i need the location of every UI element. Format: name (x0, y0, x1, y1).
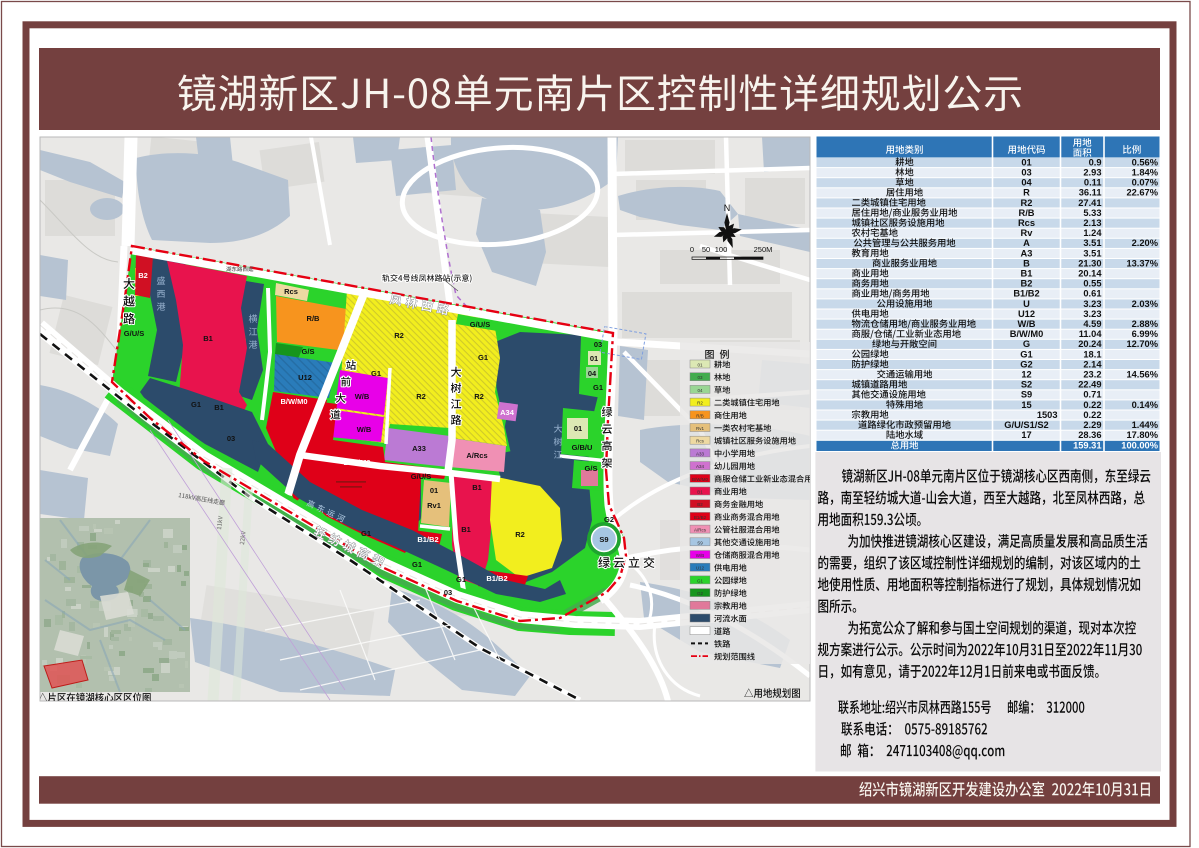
svg-text:A33: A33 (696, 451, 705, 456)
svg-text:S9: S9 (599, 535, 608, 544)
svg-text:22.49: 22.49 (1078, 380, 1101, 390)
svg-text:W/B: W/B (1017, 319, 1035, 329)
svg-text:18.1: 18.1 (1083, 349, 1101, 359)
svg-text:13.37%: 13.37% (1126, 258, 1158, 268)
svg-text:0.07%: 0.07% (1132, 178, 1159, 188)
svg-text:B1/B2: B1/B2 (1013, 289, 1039, 299)
svg-text:G1: G1 (478, 353, 488, 362)
svg-text:G2: G2 (604, 515, 614, 524)
svg-text:12: 12 (1021, 370, 1031, 380)
svg-text:W/B: W/B (696, 553, 705, 558)
svg-text:36.11: 36.11 (1079, 188, 1102, 198)
svg-text:3.23: 3.23 (1083, 299, 1101, 309)
svg-text:03: 03 (697, 375, 703, 380)
svg-text:R2: R2 (416, 392, 426, 401)
svg-text:250M: 250M (754, 245, 773, 254)
svg-text:G2: G2 (697, 591, 704, 596)
svg-text:G1: G1 (371, 369, 381, 378)
svg-text:Rv1: Rv1 (696, 426, 704, 431)
svg-text:15: 15 (1021, 400, 1031, 410)
svg-text:G/U/S: G/U/S (124, 329, 144, 338)
svg-text:2.20%: 2.20% (1132, 238, 1159, 248)
svg-text:11.04: 11.04 (1079, 329, 1103, 339)
svg-text:3.51: 3.51 (1083, 248, 1101, 258)
svg-text:A34: A34 (696, 464, 705, 469)
svg-text:A34: A34 (500, 408, 515, 417)
svg-text:B: B (1023, 258, 1030, 268)
svg-text:17.80%: 17.80% (1126, 430, 1158, 440)
svg-text:5.33: 5.33 (1083, 208, 1101, 218)
svg-text:B1: B1 (214, 403, 224, 412)
svg-text:2.88%: 2.88% (1132, 319, 1159, 329)
svg-text:14.56%: 14.56% (1126, 370, 1158, 380)
svg-text:A3: A3 (1021, 248, 1033, 258)
svg-text:12.70%: 12.70% (1126, 339, 1158, 349)
svg-text:2.29: 2.29 (1083, 420, 1101, 430)
svg-text:0.11: 0.11 (1084, 178, 1102, 188)
svg-text:2.13: 2.13 (1083, 218, 1101, 228)
svg-text:Rcs: Rcs (696, 439, 704, 444)
svg-text:01: 01 (590, 354, 598, 363)
svg-text:G/U/S: G/U/S (470, 320, 490, 329)
svg-text:B1: B1 (697, 490, 703, 495)
svg-text:22.67%: 22.67% (1126, 188, 1158, 198)
svg-text:03: 03 (1021, 168, 1031, 178)
svg-text:G/S: G/S (585, 464, 598, 473)
svg-text:159.31: 159.31 (1073, 441, 1101, 451)
svg-text:R2: R2 (697, 401, 703, 406)
svg-text:0.14%: 0.14% (1132, 400, 1159, 410)
svg-text:G1: G1 (361, 529, 371, 538)
svg-text:G1: G1 (412, 560, 422, 569)
svg-text:B/W/M0: B/W/M0 (343, 458, 370, 467)
svg-text:1.24: 1.24 (1083, 228, 1102, 238)
svg-text:2.14: 2.14 (1083, 359, 1102, 369)
svg-text:B1/B2: B1/B2 (486, 574, 507, 583)
svg-text:B/W/M0: B/W/M0 (692, 477, 708, 482)
svg-text:03: 03 (444, 588, 452, 597)
svg-text:G1: G1 (593, 383, 603, 392)
svg-text:B1: B1 (461, 525, 471, 534)
svg-text:1.84%: 1.84% (1132, 168, 1159, 178)
svg-text:G/U/S1/S2: G/U/S1/S2 (1004, 420, 1048, 430)
svg-text:0.71: 0.71 (1083, 390, 1101, 400)
svg-text:20.24: 20.24 (1078, 339, 1102, 349)
svg-text:A/Rcs: A/Rcs (694, 528, 707, 533)
svg-text:B2: B2 (138, 271, 148, 280)
svg-text:Rcs: Rcs (1018, 218, 1035, 228)
svg-text:100: 100 (715, 245, 728, 254)
svg-text:B2: B2 (1021, 279, 1033, 289)
svg-text:1.44%: 1.44% (1132, 420, 1159, 430)
svg-text:01: 01 (574, 424, 582, 433)
svg-text:2.93: 2.93 (1083, 168, 1101, 178)
svg-text:R2: R2 (1021, 198, 1033, 208)
svg-text:04: 04 (1021, 178, 1032, 188)
svg-text:03: 03 (594, 340, 602, 349)
svg-text:100.00%: 100.00% (1121, 441, 1158, 451)
svg-text:R2: R2 (515, 530, 525, 539)
svg-text:G/U/S: G/U/S (411, 472, 431, 481)
svg-text:W/B: W/B (355, 392, 370, 401)
svg-text:W/B: W/B (357, 425, 372, 434)
svg-text:04: 04 (588, 369, 597, 378)
svg-text:17: 17 (1021, 430, 1031, 440)
svg-text:B2: B2 (697, 502, 703, 507)
svg-text:0.56%: 0.56% (1132, 157, 1159, 167)
svg-text:01: 01 (430, 486, 438, 495)
svg-text:G1: G1 (456, 575, 466, 584)
svg-text:S9: S9 (1021, 390, 1032, 400)
svg-text:B1: B1 (472, 483, 482, 492)
svg-text:G/S: G/S (302, 347, 315, 356)
svg-text:B1: B1 (1021, 269, 1033, 279)
svg-text:R/B: R/B (307, 314, 321, 323)
svg-text:0.9: 0.9 (1089, 157, 1102, 167)
svg-text:03: 03 (227, 434, 235, 443)
svg-text:3.51: 3.51 (1083, 238, 1101, 248)
svg-text:21.30: 21.30 (1078, 258, 1101, 268)
svg-text:G1: G1 (191, 400, 201, 409)
svg-text:4.59: 4.59 (1083, 319, 1101, 329)
svg-text:G2: G2 (1020, 359, 1032, 369)
svg-text:2.03%: 2.03% (1132, 299, 1159, 309)
svg-text:0: 0 (690, 245, 694, 254)
svg-text:G1: G1 (1020, 349, 1032, 359)
svg-text:N: N (724, 203, 731, 213)
svg-text:S2: S2 (1021, 380, 1032, 390)
svg-text:G/B/U: G/B/U (572, 443, 593, 452)
svg-text:R: R (1023, 188, 1030, 198)
svg-text:B/W/M0: B/W/M0 (1010, 329, 1044, 339)
svg-text:U: U (1023, 299, 1030, 309)
svg-text:0.61: 0.61 (1083, 289, 1101, 299)
svg-text:04: 04 (697, 388, 703, 393)
svg-text:20.14: 20.14 (1078, 269, 1102, 279)
svg-text:G: G (1023, 339, 1030, 349)
svg-text:Rv1: Rv1 (427, 501, 441, 510)
svg-text:R/B: R/B (696, 413, 704, 418)
svg-text:G1: G1 (697, 578, 704, 583)
svg-text:B1: B1 (203, 334, 213, 343)
svg-text:A33: A33 (412, 444, 426, 453)
svg-text:0.22: 0.22 (1083, 400, 1101, 410)
svg-text:23.2: 23.2 (1083, 370, 1101, 380)
svg-text:Rv: Rv (1021, 228, 1034, 238)
svg-text:B/W/M0: B/W/M0 (280, 397, 307, 406)
svg-text:B1/B2: B1/B2 (417, 535, 438, 544)
svg-text:0.22: 0.22 (1083, 410, 1101, 420)
svg-text:27.41: 27.41 (1078, 198, 1101, 208)
svg-text:01: 01 (697, 363, 703, 368)
svg-text:6.99%: 6.99% (1132, 329, 1159, 339)
svg-text:1503: 1503 (1037, 410, 1058, 420)
svg-text:3.23: 3.23 (1083, 309, 1101, 319)
svg-text:01: 01 (1021, 157, 1031, 167)
svg-text:R/B: R/B (1018, 208, 1034, 218)
svg-text:B1/B2: B1/B2 (694, 515, 707, 520)
svg-text:R2: R2 (394, 331, 404, 340)
svg-text:U12: U12 (1018, 309, 1035, 319)
svg-text:U12: U12 (298, 373, 312, 382)
svg-text:A/Rcs: A/Rcs (466, 451, 487, 460)
svg-text:A: A (1023, 238, 1030, 248)
svg-text:50: 50 (702, 245, 710, 254)
svg-text:0.55: 0.55 (1083, 279, 1101, 289)
svg-text:U12: U12 (696, 566, 705, 571)
svg-text:S9: S9 (697, 540, 703, 545)
svg-text:Rcs: Rcs (284, 287, 298, 296)
svg-text:R2: R2 (474, 392, 484, 401)
svg-text:28.36: 28.36 (1078, 430, 1101, 440)
